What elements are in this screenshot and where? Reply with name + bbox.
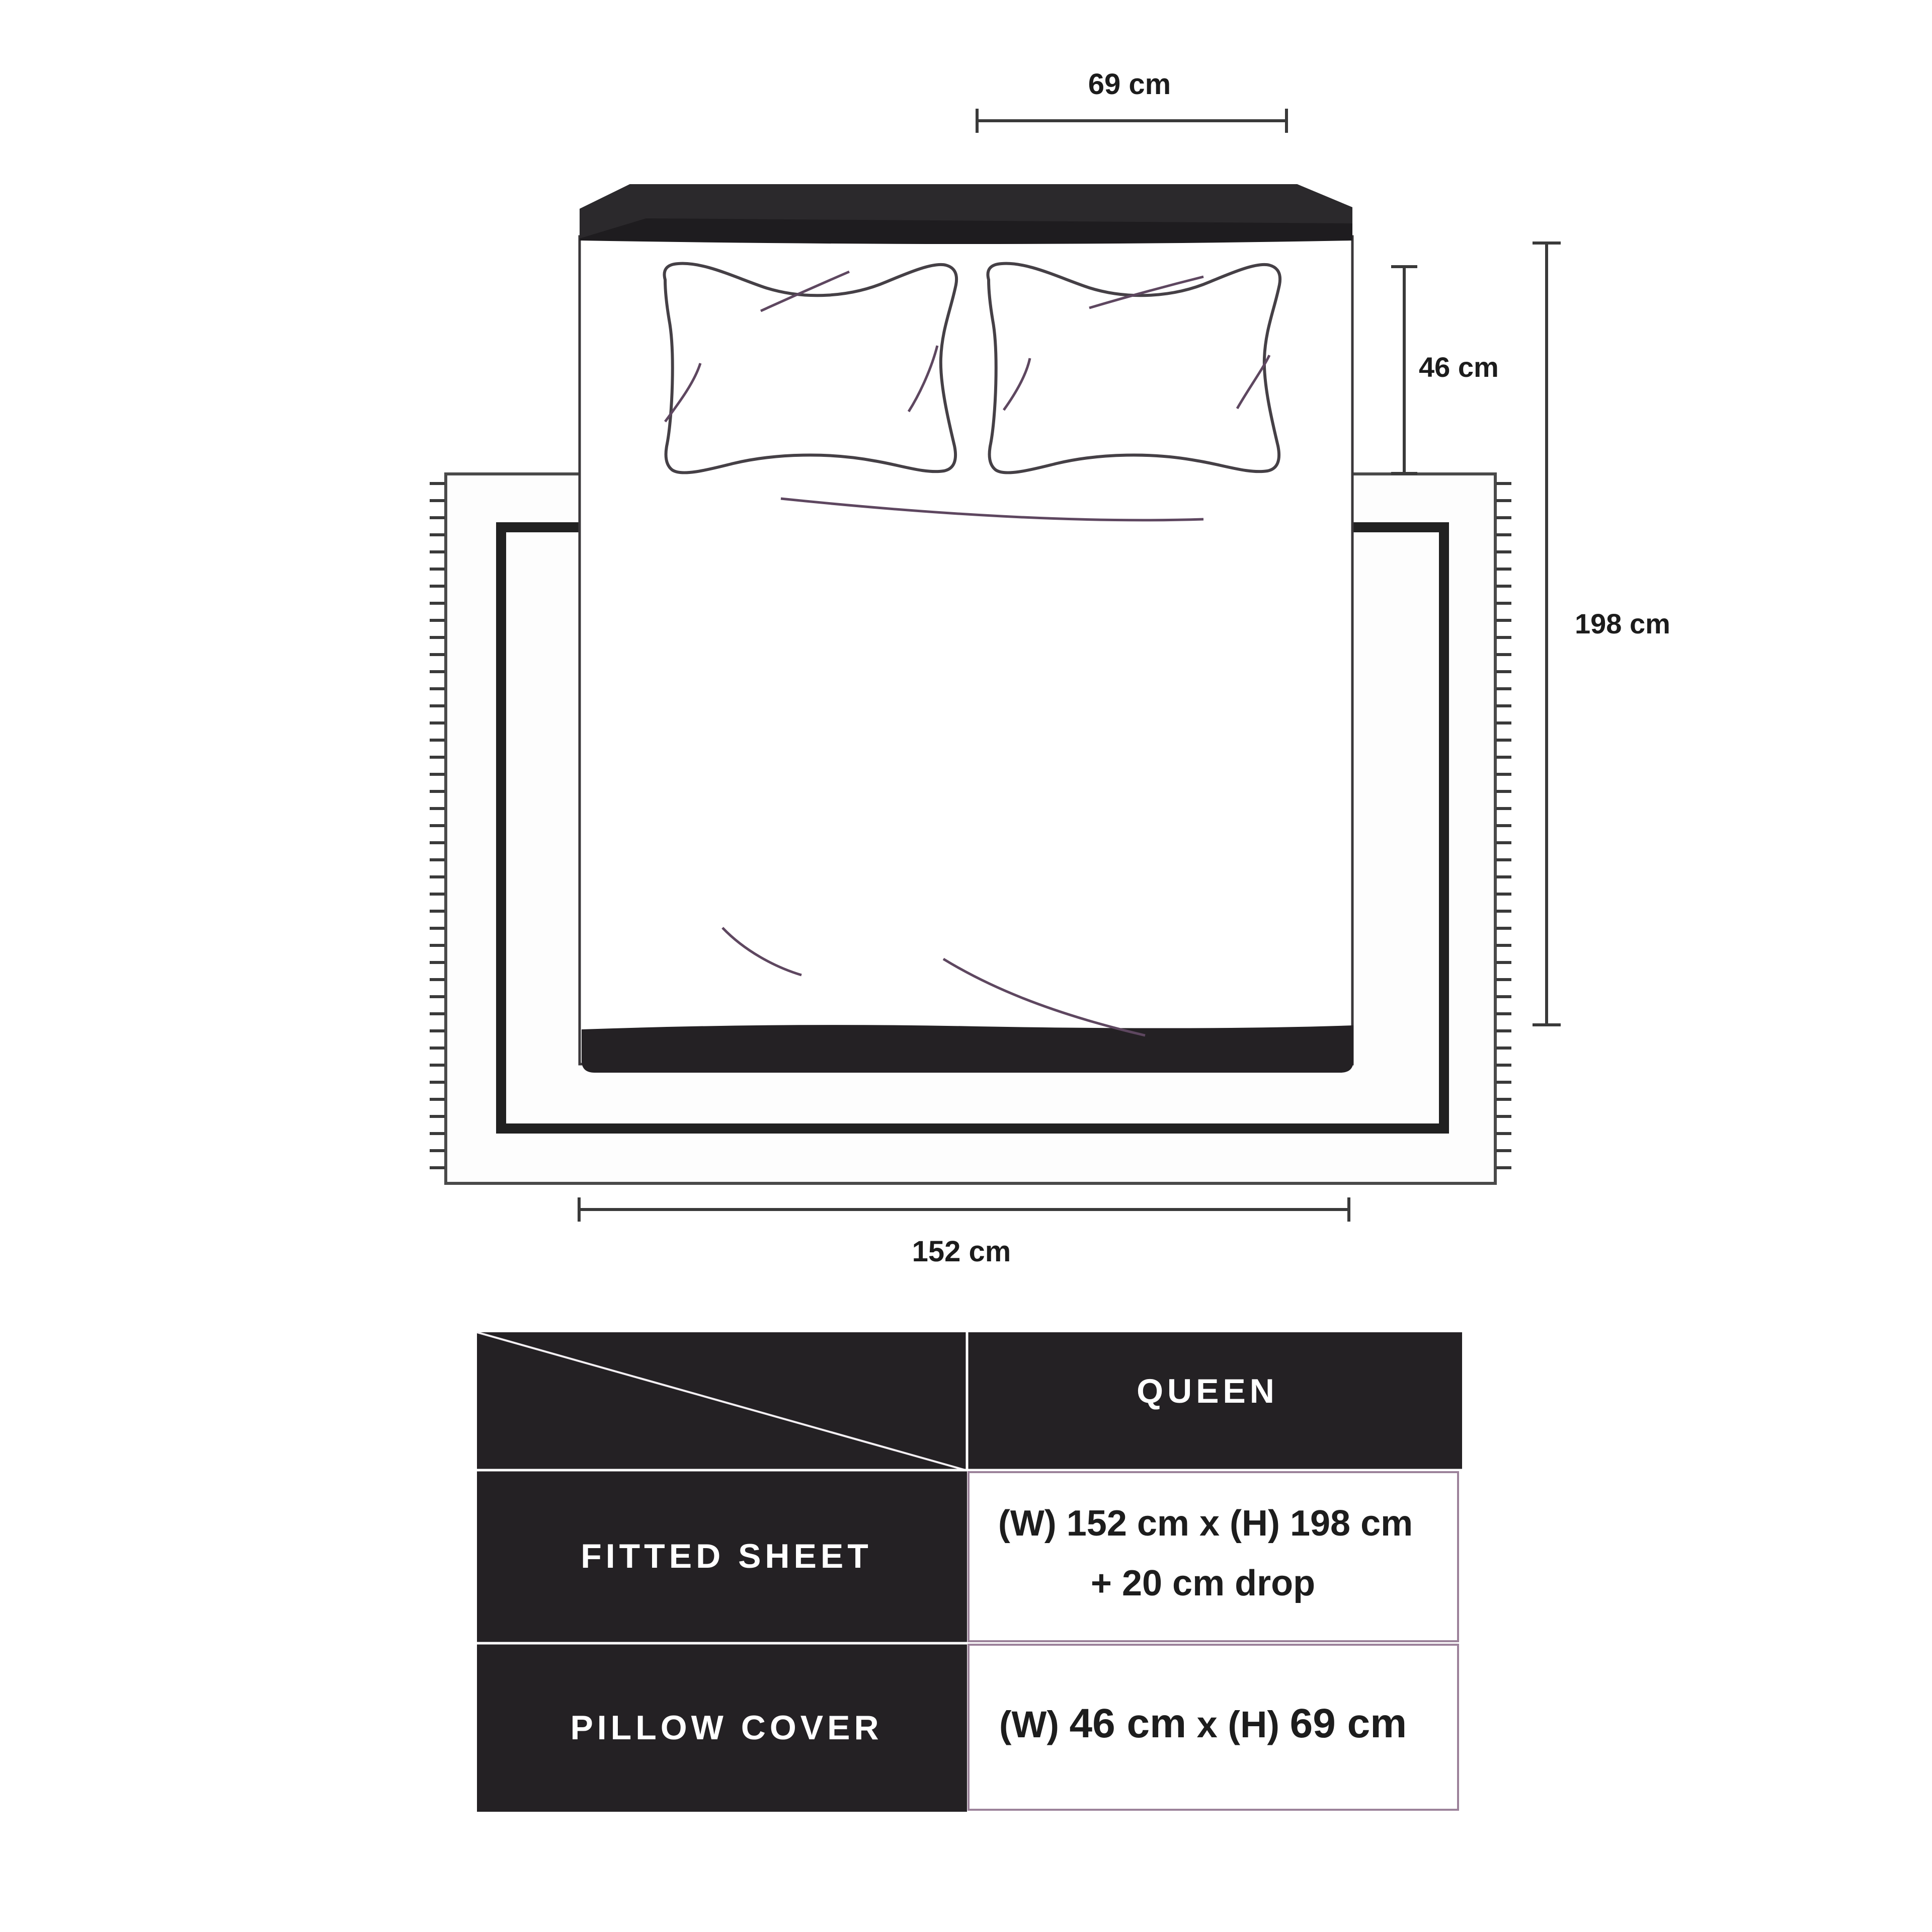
svg-text:(W) 152 cm x (H) 198 cm: (W) 152 cm x (H) 198 cm <box>998 1503 1413 1544</box>
svg-text:PILLOW COVER: PILLOW COVER <box>570 1709 882 1747</box>
svg-text:(W) 46 cm x (H) 69 cm: (W) 46 cm x (H) 69 cm <box>999 1701 1407 1746</box>
svg-text:QUEEN: QUEEN <box>1137 1372 1278 1410</box>
svg-text:FITTED SHEET: FITTED SHEET <box>581 1537 872 1575</box>
svg-text:46 cm: 46 cm <box>1419 351 1499 383</box>
svg-text:198 cm: 198 cm <box>1575 608 1670 639</box>
svg-text:+ 20 cm drop: + 20 cm drop <box>1091 1563 1315 1603</box>
svg-text:152 cm: 152 cm <box>912 1235 1011 1268</box>
svg-text:69 cm: 69 cm <box>1088 68 1171 101</box>
